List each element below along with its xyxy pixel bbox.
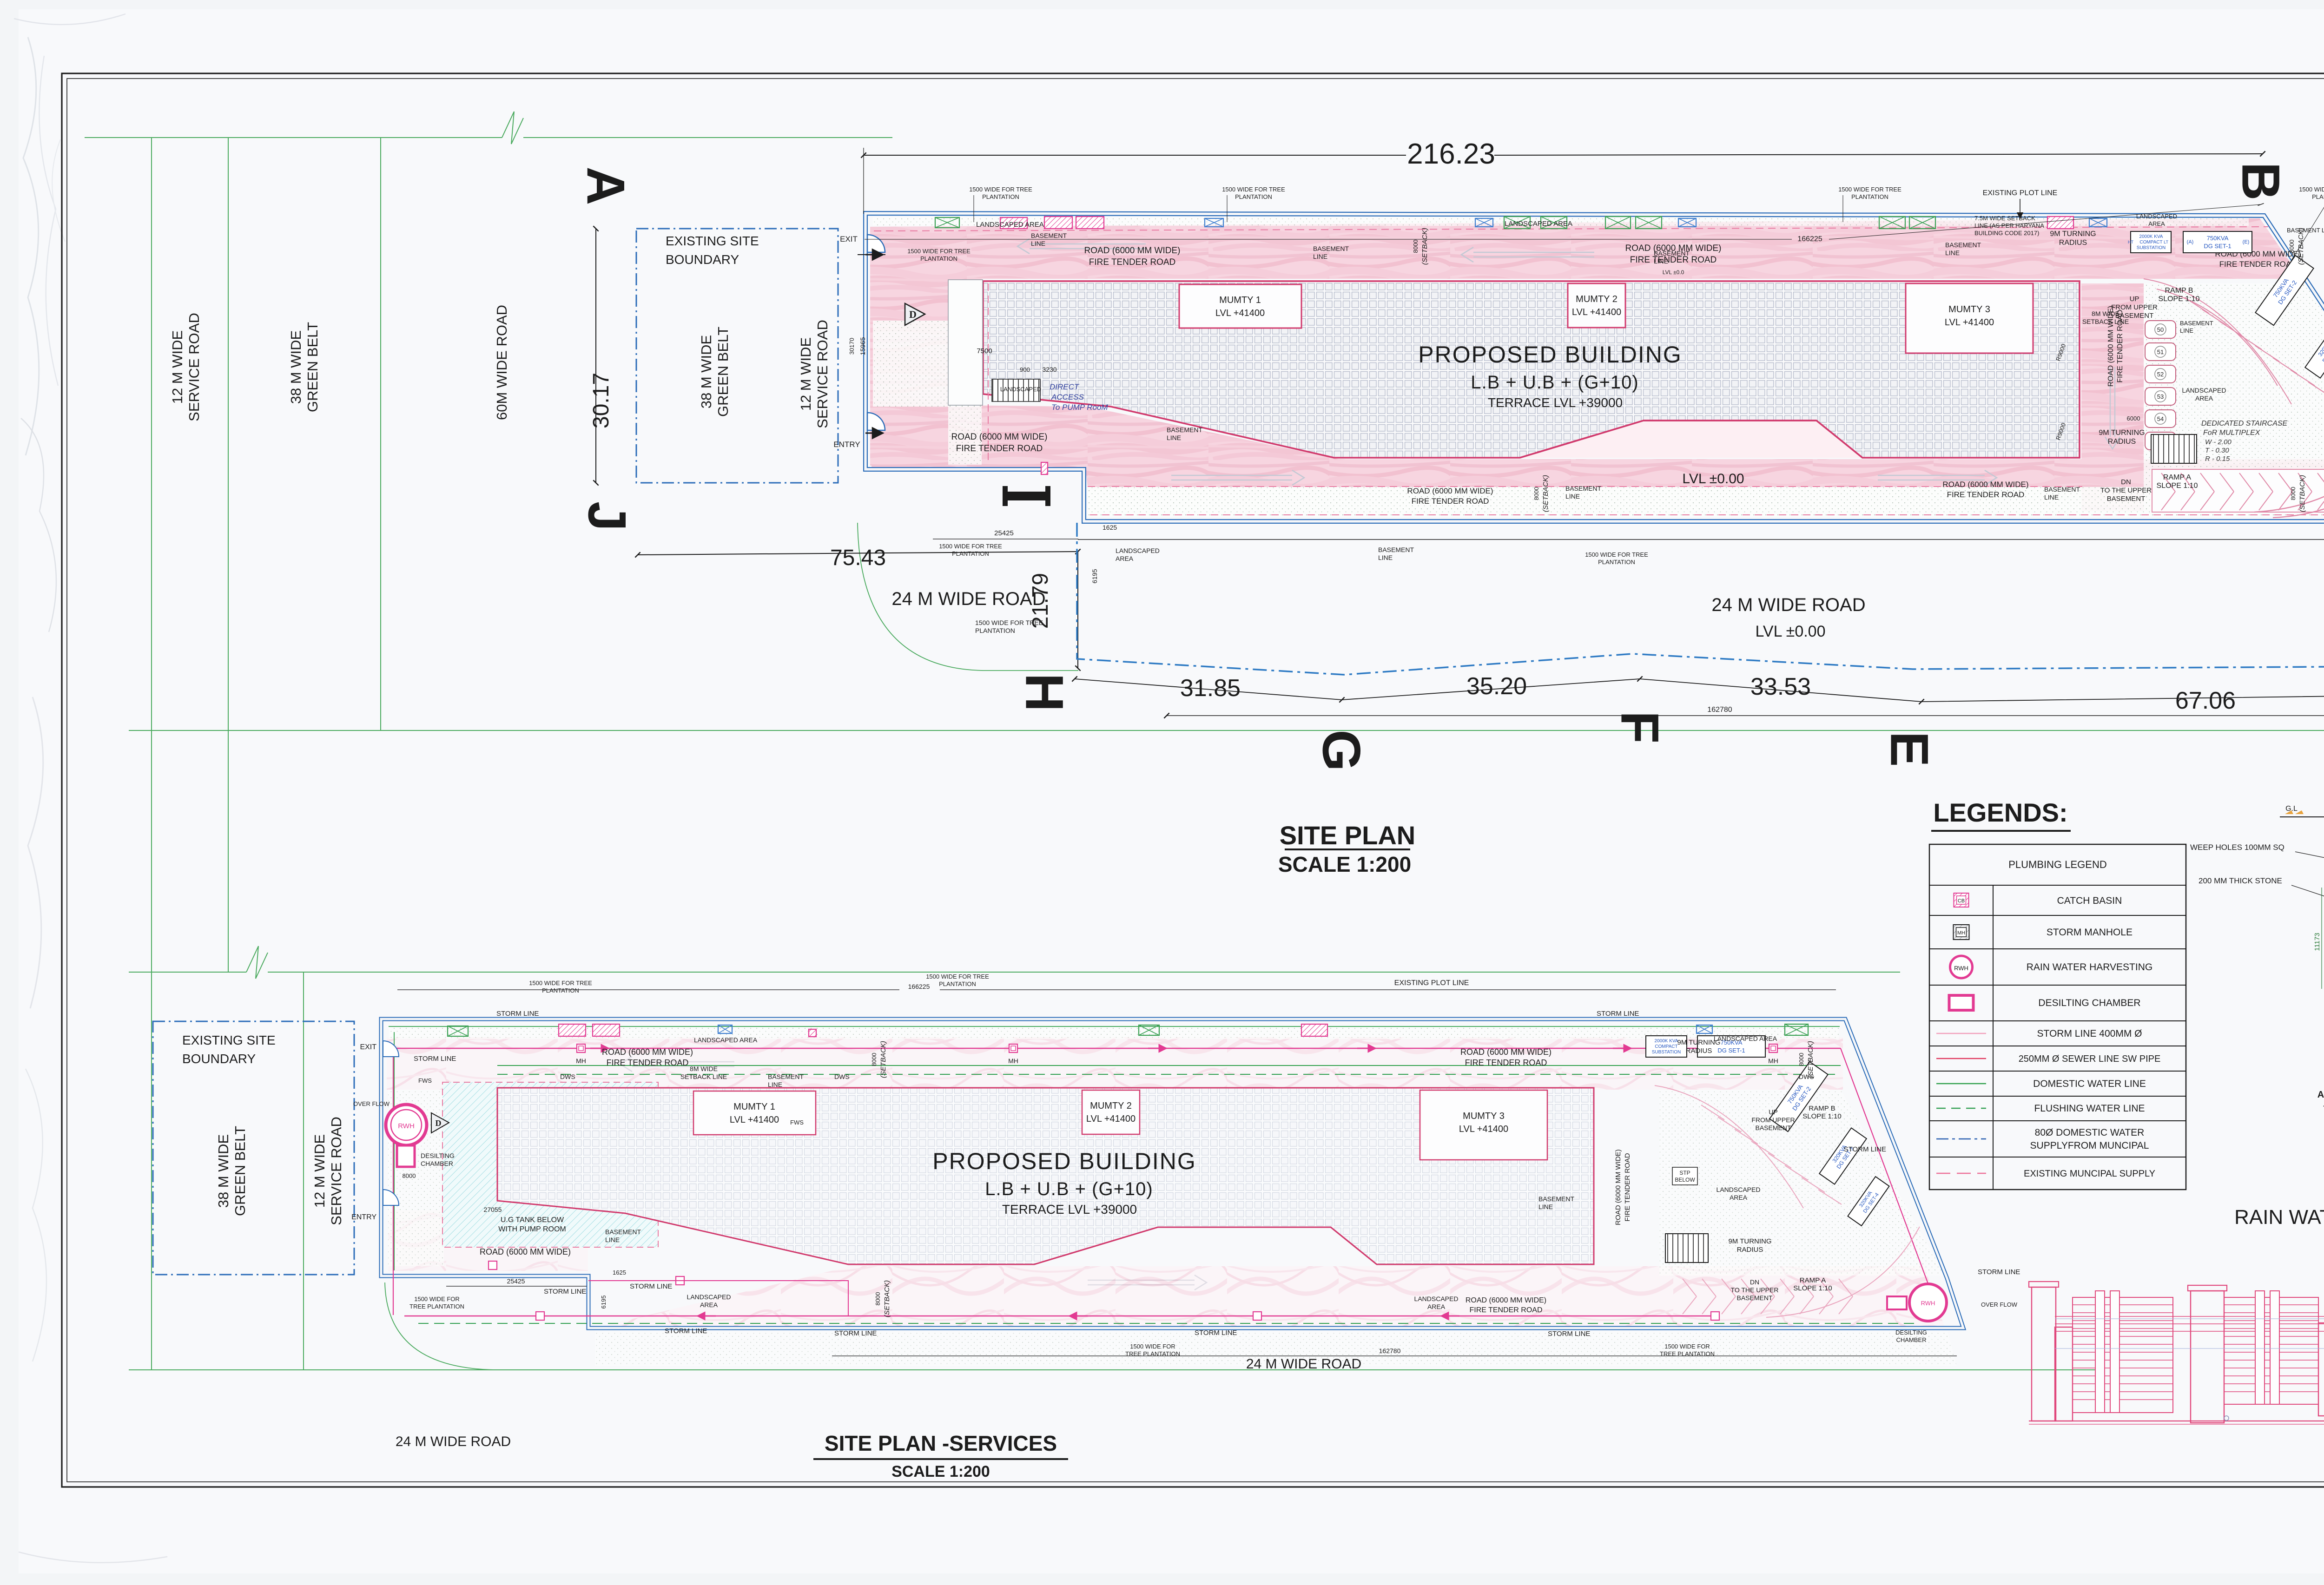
svg-text:MUMTY 2: MUMTY 2 [1090,1101,1132,1111]
svg-text:FIRE TENDER ROAD: FIRE TENDER ROAD [2219,260,2297,269]
svg-text:AREA: AREA [700,1301,718,1309]
svg-text:LINE: LINE [1313,253,1327,260]
svg-text:1500 WIDE FOR TREE: 1500 WIDE FOR TREE [2299,186,2324,193]
svg-text:DESILTING CHAMBER: DESILTING CHAMBER [2038,998,2140,1008]
svg-text:STORM LINE: STORM LINE [1548,1330,1590,1338]
svg-text:11173: 11173 [2313,933,2321,951]
svg-text:T - 0.30: T - 0.30 [2205,447,2229,454]
svg-text:ROAD (6000 MM WIDE): ROAD (6000 MM WIDE) [1942,480,2028,489]
svg-text:200 MM THICK STONE: 200 MM THICK STONE [2199,876,2282,885]
svg-text:BASEMENT: BASEMENT [2044,486,2080,493]
svg-text:FoR MULTIPLEX: FoR MULTIPLEX [2203,429,2261,437]
svg-text:COMPACT: COMPACT [1655,1044,1677,1049]
svg-text:BASEMENT LINE: BASEMENT LINE [2287,227,2324,234]
svg-text:BASEMENT: BASEMENT [1538,1195,1574,1203]
svg-text:LANDSCAPED AREA: LANDSCAPED AREA [694,1036,758,1044]
svg-text:SUBSTATION: SUBSTATION [1652,1050,1681,1055]
svg-text:TERRACE LVL +39000: TERRACE LVL +39000 [1488,395,1623,410]
svg-text:TO THE UPPER: TO THE UPPER [1731,1286,1779,1294]
svg-text:LANDSCAPED: LANDSCAPED [2182,387,2226,394]
svg-text:2000K KVA: 2000K KVA [2139,234,2163,239]
svg-text:MUMTY 1: MUMTY 1 [733,1102,775,1112]
svg-text:LINE: LINE [605,1236,620,1243]
svg-text:LANDSCAPED: LANDSCAPED [1414,1295,1459,1302]
svg-text:LVL ±0.0: LVL ±0.0 [1663,269,1684,276]
svg-text:WEEP HOLES 100MM SQ: WEEP HOLES 100MM SQ [2190,843,2284,852]
svg-text:FIRE TENDER ROAD: FIRE TENDER ROAD [1465,1058,1547,1067]
svg-text:EXIT: EXIT [360,1043,376,1051]
svg-text:STORM LINE: STORM LINE [1597,1010,1639,1018]
svg-text:ENTRY: ENTRY [833,440,860,449]
svg-text:U.G TANK BELOW: U.G TANK BELOW [501,1216,564,1224]
svg-text:38 M WIDE: 38 M WIDE [288,330,304,404]
svg-text:LINE: LINE [1945,249,1960,256]
svg-text:FIRE TENDER ROAD: FIRE TENDER ROAD [1089,257,1176,267]
svg-text:BASEMENT: BASEMENT [1031,232,1067,239]
svg-text:SERVICE ROAD: SERVICE ROAD [814,320,831,428]
svg-text:GREEN BELT: GREEN BELT [715,327,731,417]
svg-text:SLOPE 1:10: SLOPE 1:10 [2159,295,2200,303]
svg-text:1500 WIDE FOR TREE: 1500 WIDE FOR TREE [975,619,1043,626]
svg-text:162780: 162780 [1707,706,1732,714]
svg-text:RWH: RWH [1954,965,1968,972]
svg-text:LVL ±0.00: LVL ±0.00 [1682,471,1744,487]
svg-text:TERRACE LVL +39000: TERRACE LVL +39000 [1002,1202,1137,1217]
svg-text:D: D [436,1118,442,1128]
svg-text:AREA: AREA [2195,395,2213,402]
svg-text:STORM LINE: STORM LINE [496,1010,539,1018]
svg-text:OVER FLOW: OVER FLOW [353,1100,390,1107]
svg-text:RAMP B: RAMP B [1809,1105,1835,1112]
svg-text:1500 WIDE FOR: 1500 WIDE FOR [1664,1343,1710,1350]
svg-text:FLUSHING WATER LINE: FLUSHING WATER LINE [2034,1103,2145,1114]
svg-text:(SETBACK): (SETBACK) [879,1041,887,1078]
svg-text:7500: 7500 [977,347,992,355]
svg-text:PLANTATION: PLANTATION [1598,559,1635,566]
svg-text:(SETBACK): (SETBACK) [2297,228,2305,265]
svg-text:LINE: LINE [2180,327,2193,334]
svg-text:SLOPE 1:10: SLOPE 1:10 [1793,1284,1832,1292]
svg-text:A: A [2317,1090,2324,1100]
svg-text:TO THE UPPER: TO THE UPPER [2100,487,2152,494]
svg-text:DWS: DWS [834,1073,850,1080]
svg-text:BOUNDARY: BOUNDARY [182,1052,256,1066]
svg-text:GREEN BELT: GREEN BELT [304,322,321,412]
svg-text:1625: 1625 [613,1269,626,1276]
svg-text:STORM LINE: STORM LINE [665,1327,707,1335]
svg-text:3230: 3230 [1042,366,1056,373]
svg-text:RAIN WATER HARVESTING: RAIN WATER HARVESTING [2027,962,2152,973]
svg-text:6195: 6195 [1091,569,1098,583]
svg-text:8000: 8000 [2290,487,2297,500]
svg-text:9M TURNING: 9M TURNING [2050,230,2096,238]
svg-text:STP: STP [1679,1170,1690,1176]
svg-text:38 M WIDE: 38 M WIDE [215,1134,231,1208]
svg-text:ROAD (6000 MM WIDE): ROAD (6000 MM WIDE) [1460,1047,1552,1057]
svg-text:FIRE TENDER ROAD: FIRE TENDER ROAD [956,444,1043,454]
svg-text:TREE PLANTATION: TREE PLANTATION [409,1303,464,1310]
svg-text:1500 WIDE FOR: 1500 WIDE FOR [1130,1343,1175,1350]
svg-text:(SETBACK): (SETBACK) [883,1280,891,1317]
svg-text:1625: 1625 [1103,524,1117,531]
svg-text:SERVICE ROAD: SERVICE ROAD [186,313,202,421]
svg-text:LVL ±0.00: LVL ±0.00 [1756,623,1826,640]
svg-text:LINE: LINE [1378,554,1393,561]
svg-text:UP: UP [2130,295,2139,303]
svg-text:ROAD (6000 MM WIDE): ROAD (6000 MM WIDE) [1084,246,1181,256]
svg-text:80Ø DOMESTIC WATER: 80Ø DOMESTIC WATER [2035,1127,2145,1138]
svg-text:CHAMBER: CHAMBER [1896,1336,1926,1343]
svg-text:STORM LINE: STORM LINE [630,1282,672,1290]
svg-text:WITH PUMP ROOM: WITH PUMP ROOM [498,1225,566,1233]
svg-text:EXISTING SITE: EXISTING SITE [182,1033,276,1047]
svg-text:PLANTATION: PLANTATION [975,627,1015,634]
svg-text:ROAD (6000 MM WIDE): ROAD (6000 MM WIDE) [951,432,1048,442]
svg-text:STORM LINE: STORM LINE [414,1055,456,1063]
svg-text:TREE PLANTATION: TREE PLANTATION [1125,1350,1180,1357]
svg-text:12 M WIDE: 12 M WIDE [169,330,185,404]
svg-text:EXIT: EXIT [840,235,858,243]
svg-text:50: 50 [2157,326,2164,333]
svg-text:1500 WIDE FOR TREE: 1500 WIDE FOR TREE [529,980,592,987]
svg-text:DIRECT: DIRECT [1050,382,1080,391]
svg-text:AREA: AREA [1427,1303,1446,1310]
svg-text:1500 WIDE FOR TREE: 1500 WIDE FOR TREE [969,186,1032,193]
svg-text:PLANTATION: PLANTATION [2312,193,2324,200]
svg-text:SUBSTATION: SUBSTATION [2137,245,2166,250]
svg-text:LINE: LINE [1565,493,1580,500]
svg-text:AREA: AREA [2148,220,2165,227]
svg-text:FIRE TENDER ROAD: FIRE TENDER ROAD [1624,1153,1631,1221]
svg-text:PLANTATION: PLANTATION [1851,193,1888,200]
svg-text:FWS: FWS [418,1077,432,1084]
svg-text:LANDSCAPED AREA: LANDSCAPED AREA [1505,220,1572,228]
svg-text:ROAD (6000 MM WIDE): ROAD (6000 MM WIDE) [602,1047,693,1057]
svg-text:BASEMENT: BASEMENT [1167,426,1202,434]
svg-text:STORM LINE 400MM Ø: STORM LINE 400MM Ø [2037,1028,2142,1039]
svg-text:A: A [576,166,635,205]
svg-text:H: H [1015,673,1074,711]
svg-text:FIRE TENDER ROAD: FIRE TENDER ROAD [1469,1306,1542,1314]
svg-text:TREE PLANTATION: TREE PLANTATION [1660,1350,1715,1357]
svg-text:1500 WIDE FOR TREE: 1500 WIDE FOR TREE [907,248,971,255]
svg-text:2000K KVA: 2000K KVA [1655,1039,1678,1044]
svg-text:8M WIDE: 8M WIDE [690,1065,718,1072]
svg-text:To PUMP RooM: To PUMP RooM [1051,403,1108,412]
svg-text:J: J [577,501,637,531]
svg-text:W - 2.00: W - 2.00 [2205,438,2232,446]
svg-text:750KVA: 750KVA [2207,235,2229,242]
svg-text:52: 52 [2157,371,2164,378]
svg-text:DESILTING: DESILTING [1895,1329,1927,1336]
svg-text:SITE PLAN -SERVICES: SITE PLAN -SERVICES [825,1431,1057,1455]
svg-text:SCALE 1:200: SCALE 1:200 [891,1463,990,1480]
svg-text:PLANTATION: PLANTATION [542,987,579,994]
svg-text:LANDSCAPED: LANDSCAPED [687,1293,731,1301]
svg-text:1500 WIDE FOR TREE: 1500 WIDE FOR TREE [1222,186,1285,193]
svg-text:E: E [1880,731,1939,767]
svg-text:OVER FLOW: OVER FLOW [1981,1301,2018,1308]
svg-text:12 M WIDE: 12 M WIDE [798,337,814,411]
svg-text:AREA: AREA [1730,1194,1748,1201]
svg-text:R - 0.15: R - 0.15 [2205,455,2230,463]
svg-text:STORM LINE: STORM LINE [834,1329,877,1337]
svg-text:SLOPE 1:10: SLOPE 1:10 [2157,482,2198,490]
svg-text:MUMTY 3: MUMTY 3 [1948,304,1990,315]
svg-text:51: 51 [2157,349,2164,355]
svg-text:STORM LINE: STORM LINE [1195,1329,1237,1337]
svg-text:LANDSCAPED: LANDSCAPED [1717,1186,1761,1193]
svg-text:DN: DN [1750,1278,1759,1286]
svg-text:CATCH BASIN: CATCH BASIN [2057,895,2122,906]
svg-text:8000: 8000 [2288,240,2295,253]
svg-text:(SETBACK): (SETBACK) [1807,1041,1815,1078]
svg-text:STORM LINE: STORM LINE [1978,1268,2020,1276]
svg-text:1500 WIDE FOR TREE: 1500 WIDE FOR TREE [1838,186,1901,193]
svg-text:MH: MH [1008,1057,1018,1065]
svg-text:L.B + U.B + (G+10): L.B + U.B + (G+10) [1471,372,1639,393]
svg-text:31.85: 31.85 [1180,675,1241,702]
svg-text:1500 WIDE FOR TREE: 1500 WIDE FOR TREE [1585,551,1648,558]
svg-text:BASEMENT: BASEMENT [1654,250,1690,257]
svg-text:(SETBACK): (SETBACK) [1421,228,1429,265]
svg-text:MH: MH [576,1057,586,1065]
svg-text:MUMTY 2: MUMTY 2 [1576,294,1618,304]
svg-text:LVL +41400: LVL +41400 [1572,307,1621,317]
svg-text:(SETBACK): (SETBACK) [1542,475,1550,512]
svg-text:ENTRY: ENTRY [351,1213,376,1221]
svg-text:24 M WIDE ROAD: 24 M WIDE ROAD [1246,1356,1361,1372]
svg-text:8000: 8000 [1798,1053,1805,1066]
svg-text:SETBACK LINE: SETBACK LINE [2082,318,2129,325]
svg-text:PLANTATION: PLANTATION [952,550,989,557]
svg-text:LVL +41400: LVL +41400 [1459,1124,1508,1134]
svg-text:RADIUS: RADIUS [1686,1047,1712,1055]
svg-text:8000: 8000 [871,1053,878,1066]
svg-text:LINE: LINE [1654,257,1668,265]
svg-text:12 M WIDE: 12 M WIDE [311,1134,328,1208]
svg-text:LVL +41400: LVL +41400 [730,1115,779,1125]
svg-text:ROAD (6000 MM WIDE): ROAD (6000 MM WIDE) [480,1247,571,1256]
svg-text:EXISTING SITE: EXISTING SITE [666,234,759,248]
svg-text:30.17: 30.17 [589,373,614,428]
svg-text:DG SET-1: DG SET-1 [1717,1047,1745,1054]
svg-text:LINE (AS PER HARYANA: LINE (AS PER HARYANA [1974,222,2044,229]
svg-text:166225: 166225 [1797,235,1822,243]
svg-text:MH: MH [1768,1057,1778,1065]
svg-text:EXISTING MUNCIPAL SUPPLY: EXISTING MUNCIPAL SUPPLY [2024,1169,2155,1179]
svg-text:FIRE TENDER ROAD: FIRE TENDER ROAD [1947,490,2025,499]
svg-text:9M TURNING: 9M TURNING [1728,1237,1771,1245]
svg-text:CB: CB [1958,898,1965,904]
svg-text:24 M WIDE ROAD: 24 M WIDE ROAD [396,1434,511,1449]
svg-text:BASEMENT: BASEMENT [1378,546,1414,553]
svg-text:BASEMENT: BASEMENT [605,1228,641,1236]
svg-text:(A): (A) [2187,239,2194,245]
svg-text:BASEMENT: BASEMENT [1755,1124,1791,1131]
svg-text:BASEMENT: BASEMENT [1736,1294,1772,1302]
svg-text:L.B + U.B + (G+10): L.B + U.B + (G+10) [985,1179,1153,1199]
svg-text:RADIUS: RADIUS [2108,438,2136,446]
svg-text:LVL +41400: LVL +41400 [1945,317,1994,328]
svg-text:250MM Ø SEWER LINE SW PIPE: 250MM Ø SEWER LINE SW PIPE [2019,1054,2161,1064]
svg-text:BOUNDARY: BOUNDARY [666,252,739,267]
svg-text:STORM LINE: STORM LINE [1844,1145,1886,1153]
svg-text:ROAD (6000 MM WIDE): ROAD (6000 MM WIDE) [1614,1149,1622,1225]
svg-text:9M TURNING: 9M TURNING [2099,429,2145,437]
svg-text:PLANTATION: PLANTATION [939,980,976,987]
svg-text:RWH: RWH [1921,1300,1935,1307]
svg-text:BASEMENT: BASEMENT [2107,495,2146,503]
svg-text:67.06: 67.06 [2175,687,2236,714]
svg-text:1500 WIDE FOR TREE: 1500 WIDE FOR TREE [926,973,989,980]
svg-text:F: F [1610,711,1670,743]
svg-text:LINE: LINE [768,1081,782,1088]
svg-text:LEGENDS:: LEGENDS: [1933,798,2067,827]
svg-text:ROAD (6000 MM WIDE): ROAD (6000 MM WIDE) [1466,1296,1546,1304]
svg-text:HT: HT [2128,240,2133,244]
svg-text:6000: 6000 [2127,415,2140,422]
svg-text:24 M WIDE ROAD: 24 M WIDE ROAD [1711,595,1865,615]
svg-text:LANDSCAPED AREA: LANDSCAPED AREA [976,221,1044,229]
svg-text:LANDSCAPED: LANDSCAPED [1000,386,1041,393]
svg-text:BASEMENT: BASEMENT [2180,320,2213,327]
svg-text:BASEMENT: BASEMENT [1945,241,1981,249]
svg-text:LVL +41400: LVL +41400 [1215,308,1265,318]
svg-text:EXISTING PLOT LINE: EXISTING PLOT LINE [1983,189,2058,197]
svg-text:LINE: LINE [1538,1203,1553,1210]
svg-text:DEDICATED STAIRCASE: DEDICATED STAIRCASE [2201,420,2288,427]
svg-text:8000: 8000 [403,1172,416,1179]
svg-text:25425: 25425 [507,1277,525,1285]
svg-text:PLANTATION: PLANTATION [982,193,1019,200]
svg-text:DN: DN [2121,478,2131,486]
svg-text:DESILTING: DESILTING [421,1152,455,1159]
svg-text:B: B [2231,162,2291,200]
svg-text:216.23: 216.23 [1407,138,1495,170]
svg-text:STORM LINE: STORM LINE [544,1288,586,1296]
svg-text:8000: 8000 [874,1292,881,1306]
svg-text:ROAD (6000 MM WIDE): ROAD (6000 MM WIDE) [1407,487,1493,495]
svg-text:RADIUS: RADIUS [1737,1246,1763,1254]
svg-text:8M WIDE: 8M WIDE [2092,310,2119,317]
svg-text:54: 54 [2157,415,2164,422]
svg-text:RAMP A: RAMP A [1800,1276,1826,1284]
svg-text:RAMP A: RAMP A [2163,474,2192,481]
svg-text:DOMESTIC WATER LINE: DOMESTIC WATER LINE [2033,1079,2146,1089]
svg-text:38 M WIDE: 38 M WIDE [698,335,714,408]
svg-text:SLOPE 1:10: SLOPE 1:10 [1802,1112,1841,1120]
svg-text:900: 900 [1020,366,1030,373]
svg-text:166225: 166225 [908,983,930,990]
svg-text:LANDSCAPED: LANDSCAPED [1116,547,1160,554]
svg-text:FIRE TENDER ROAD: FIRE TENDER ROAD [1412,497,1489,506]
svg-text:RAMP B: RAMP B [2165,287,2193,295]
svg-text:RADIUS: RADIUS [2059,239,2087,247]
svg-text:30170: 30170 [848,338,855,355]
svg-text:EXISTING PLOT LINE: EXISTING PLOT LINE [1394,979,1469,987]
svg-text:PLANTATION: PLANTATION [1235,193,1272,200]
svg-text:SCALE 1:200: SCALE 1:200 [1278,852,1411,876]
svg-text:SETBACK LINE: SETBACK LINE [680,1073,727,1080]
svg-text:GREEN BELT: GREEN BELT [232,1126,248,1216]
svg-text:1500 WIDE FOR: 1500 WIDE FOR [414,1296,460,1302]
svg-text:FROM UPPER: FROM UPPER [1751,1116,1795,1124]
svg-text:SUPPLYFROM MUNCIPAL: SUPPLYFROM MUNCIPAL [2030,1140,2149,1151]
svg-text:MUMTY 1: MUMTY 1 [1219,295,1261,305]
svg-text:PROPOSED BUILDING: PROPOSED BUILDING [1418,342,1682,368]
svg-text:7.5M WIDE SETBACK: 7.5M WIDE SETBACK [1974,215,2035,222]
svg-text:8000: 8000 [1533,487,1540,500]
svg-text:(E): (E) [2243,239,2250,245]
svg-text:35.20: 35.20 [1466,673,1527,700]
svg-text:ACCESS: ACCESS [1051,393,1084,401]
svg-text:RWH: RWH [398,1122,415,1130]
svg-text:PLANTATION: PLANTATION [920,255,957,262]
svg-text:60M WIDE ROAD: 60M WIDE ROAD [494,305,510,420]
svg-text:24 M WIDE ROAD: 24 M WIDE ROAD [891,589,1045,609]
svg-text:DWS: DWS [560,1073,575,1080]
svg-text:LINE: LINE [1167,434,1181,441]
svg-text:53: 53 [2157,393,2164,400]
svg-text:FWS: FWS [790,1119,804,1126]
svg-text:25425: 25425 [994,529,1014,537]
svg-text:MUMTY 3: MUMTY 3 [1463,1111,1505,1121]
svg-text:27055: 27055 [484,1206,502,1213]
svg-text:BELOW: BELOW [1675,1177,1695,1183]
svg-text:SERVICE ROAD: SERVICE ROAD [328,1117,344,1225]
svg-text:BASEMENT: BASEMENT [1565,485,1601,492]
svg-text:SITE PLAN: SITE PLAN [1280,821,1415,850]
svg-text:15965: 15965 [859,337,866,355]
svg-text:BUILDING CODE 2017): BUILDING CODE 2017) [1974,230,2039,237]
svg-text:RAIN WATER HARVESTING PIT DETA: RAIN WATER HARVESTING PIT DETAIL [2234,1206,2324,1229]
svg-text:UP: UP [1769,1108,1777,1116]
svg-text:BASEMENT: BASEMENT [1313,245,1349,252]
svg-text:CHAMBER: CHAMBER [421,1160,453,1167]
svg-text:PROPOSED BUILDING: PROPOSED BUILDING [932,1148,1196,1174]
svg-text:1500 WIDE FOR TREE: 1500 WIDE FOR TREE [939,543,1002,550]
svg-text:STORM MANHOLE: STORM MANHOLE [2047,927,2133,938]
svg-text:162780: 162780 [1379,1347,1401,1355]
svg-text:AREA: AREA [1116,555,1134,562]
svg-text:LINE: LINE [1031,240,1045,247]
svg-text:6195: 6195 [600,1296,607,1309]
svg-text:COMPACT: COMPACT [2139,240,2162,245]
svg-text:LT: LT [2164,240,2168,244]
svg-text:75.43: 75.43 [830,546,886,570]
svg-text:33.53: 33.53 [1750,673,1811,700]
svg-text:G: G [1312,730,1371,771]
svg-text:BASEMENT: BASEMENT [768,1073,804,1080]
svg-text:LVL +41400: LVL +41400 [1086,1114,1136,1124]
svg-text:FIRE TENDER ROAD: FIRE TENDER ROAD [607,1058,689,1067]
svg-text:(SETBACK): (SETBACK) [2298,475,2306,512]
svg-text:LINE: LINE [2044,493,2059,501]
svg-text:MH: MH [1957,930,1965,936]
svg-text:LANDSCAPED AREA: LANDSCAPED AREA [1714,1035,1777,1042]
svg-text:DG SET-1: DG SET-1 [2204,243,2231,250]
svg-text:8000: 8000 [1412,240,1419,253]
svg-text:D: D [909,309,917,320]
svg-text:PLUMBING LEGEND: PLUMBING LEGEND [2008,859,2107,870]
